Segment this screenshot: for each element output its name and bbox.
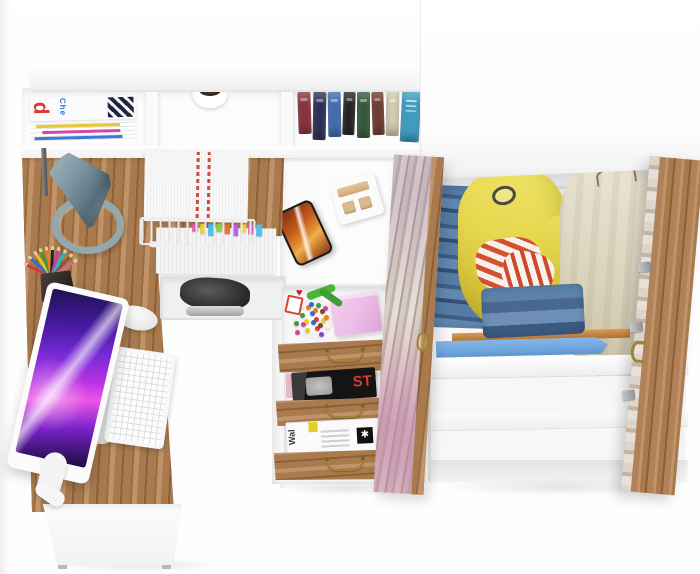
drawer-handle — [326, 351, 364, 363]
book-spine — [386, 92, 400, 136]
books-row — [298, 92, 418, 146]
bed-platform-right — [420, 0, 700, 180]
black-magazine-caption: ST — [352, 372, 372, 390]
wallpaper-logo-asterisk: ✱ — [360, 429, 369, 440]
candy-dot — [295, 330, 300, 335]
candy-dot — [318, 323, 323, 328]
magazine-photo-smudge — [305, 376, 332, 396]
black-magazine: ST — [291, 367, 377, 403]
drawer-handle — [326, 460, 364, 472]
magazine-cover-letter: d — [28, 101, 52, 114]
desk-foot — [58, 565, 67, 569]
book-spine — [371, 92, 384, 135]
candy-dot — [304, 319, 309, 324]
book-spine — [357, 92, 370, 138]
wallpaper-logo-square: ✱ — [357, 427, 374, 444]
folded-jeans — [481, 283, 585, 338]
candy-dot — [319, 332, 324, 337]
calendar-wood-cube — [358, 195, 373, 210]
heart-charm: ♥ — [296, 288, 303, 299]
background-edge-shading — [0, 0, 10, 574]
book-spine — [328, 92, 342, 137]
candy-dot — [325, 324, 330, 329]
drawer-handle — [326, 407, 364, 419]
magazine-top-cover: d Che — [29, 95, 136, 122]
magazine-cover-title: Che — [58, 98, 67, 116]
right-door-handle — [630, 340, 646, 363]
tray-metal-handle — [186, 306, 244, 316]
keyboard-keys — [108, 351, 172, 445]
wallpaper-spine-text: Wal — [286, 429, 297, 445]
wire-paper-tray — [139, 147, 257, 249]
shelf-divider — [146, 90, 158, 154]
door-hinge — [630, 321, 644, 332]
product-photo-loft-bed-workstation: d Che — [0, 0, 700, 574]
candy-dot — [316, 303, 321, 308]
wallpaper-text-lines — [320, 426, 349, 447]
magazine-stack: d Che — [29, 95, 136, 144]
candy-dot — [300, 313, 305, 318]
door-hinge — [638, 261, 652, 272]
candy-dot — [324, 315, 329, 320]
desk-front-panel — [34, 504, 182, 566]
calendar-wood-bar — [337, 180, 370, 197]
document-tab — [256, 224, 262, 236]
shelf-divider — [281, 90, 293, 154]
desk-foot — [162, 565, 171, 569]
candy-dot — [305, 328, 310, 333]
book-spine — [342, 92, 355, 135]
magazine-cover-pattern — [107, 97, 134, 118]
book-spine — [313, 92, 327, 140]
book-spine — [400, 92, 422, 143]
candy-dot — [313, 308, 318, 313]
candy-dot — [314, 317, 319, 322]
candy-dot — [294, 321, 299, 326]
basket-leg — [149, 241, 163, 247]
candy-dot — [309, 302, 314, 307]
calendar-wood-cube — [342, 200, 357, 215]
basket-leg — [225, 242, 239, 248]
candy-dot — [323, 306, 328, 311]
wallpaper-yellow-tag — [308, 422, 318, 432]
book-spine — [297, 92, 311, 134]
bed-platform-left — [8, 0, 420, 92]
door-hinge — [622, 389, 636, 400]
